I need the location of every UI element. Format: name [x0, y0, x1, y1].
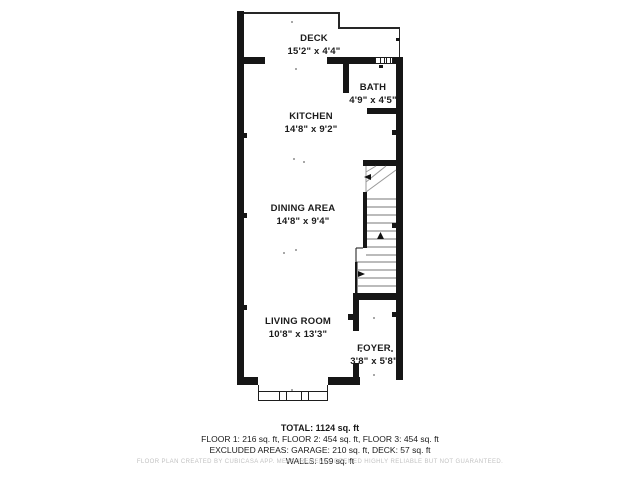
- window-mullion: [380, 58, 385, 63]
- deck-outline-upper-right: [338, 27, 400, 29]
- staircase: [350, 160, 403, 300]
- wall-tick: [392, 312, 396, 317]
- top-wall-left-segment: [237, 57, 265, 64]
- foyer-top-wall: [353, 293, 403, 300]
- room-name: LIVING ROOM: [265, 316, 331, 329]
- foyer-door-stub: [348, 314, 353, 320]
- wall-tick: [392, 130, 396, 135]
- bottom-wall-left-segment: [237, 377, 258, 385]
- left-exterior-wall: [237, 11, 244, 385]
- room-dimensions: 14'8" x 9'4": [271, 216, 336, 229]
- wall-tick: [244, 133, 247, 138]
- plan-speck: [291, 389, 293, 391]
- room-label-foyer: FOYER 3'8" x 5'8": [350, 343, 397, 368]
- plan-speck: [373, 374, 375, 376]
- room-label-kitchen: KITCHEN 14'8" x 9'2": [285, 111, 338, 136]
- foyer-left-wall-upper: [353, 300, 359, 331]
- room-dimensions: 10'8" x 13'3": [265, 329, 331, 342]
- bath-window: [375, 57, 393, 64]
- wall-tick: [392, 223, 396, 228]
- bath-bottom-wall: [367, 108, 403, 114]
- bath-left-wall: [343, 57, 349, 93]
- plan-speck: [293, 158, 295, 160]
- bottom-wall-right-segment: [328, 377, 360, 385]
- room-name: FOYER: [350, 343, 397, 356]
- room-name: BATH: [349, 82, 396, 95]
- floor-areas-text: FLOOR 1: 216 sq. ft, FLOOR 2: 454 sq. ft…: [0, 434, 640, 444]
- stair-winder-line: [366, 170, 396, 192]
- stair-lower-left-wall: [355, 262, 358, 293]
- room-dimensions: 14'8" x 9'2": [285, 124, 338, 137]
- deck-outline-top: [244, 12, 340, 14]
- room-name: DECK: [288, 33, 341, 46]
- room-dimensions: 4'9" x 4'5": [349, 95, 396, 108]
- stair-arrow-right: [358, 271, 365, 277]
- deck-outline-right: [399, 27, 401, 58]
- wall-tick: [244, 305, 247, 310]
- room-dimensions: 15'2" x 4'4": [288, 46, 341, 59]
- plan-speck: [295, 68, 297, 70]
- living-room-bay-window: [258, 391, 328, 401]
- wall-tick: [379, 65, 383, 68]
- total-area-text: TOTAL: 1124 sq. ft: [0, 423, 640, 433]
- room-label-dining-area: DINING AREA 14'8" x 9'4": [271, 203, 336, 228]
- disclaimer-text: FLOOR PLAN CREATED BY CUBICASA APP. MEAS…: [0, 459, 640, 465]
- room-label-living-room: LIVING ROOM 10'8" x 13'3": [265, 316, 331, 341]
- window-mullion: [301, 392, 309, 400]
- excluded-areas-text: EXCLUDED AREAS: GARAGE: 210 sq. ft, DECK…: [0, 445, 640, 455]
- room-label-deck: DECK 15'2" x 4'4": [288, 33, 341, 58]
- plan-speck: [295, 249, 297, 251]
- stair-left-wall: [363, 192, 367, 248]
- top-wall-mid-segment: [327, 57, 375, 64]
- room-label-bath: BATH 4'9" x 4'5": [349, 82, 396, 107]
- room-name: KITCHEN: [285, 111, 338, 124]
- wall-tick: [396, 38, 400, 41]
- plan-speck: [373, 317, 375, 319]
- room-name: DINING AREA: [271, 203, 336, 216]
- stair-winder-line: [366, 166, 376, 172]
- room-dimensions: 3'8" x 5'8": [350, 356, 397, 369]
- plan-speck: [303, 161, 305, 163]
- floor-plan-image: DECK 15'2" x 4'4" BATH 4'9" x 4'5" KITCH…: [0, 0, 640, 480]
- window-mullion: [386, 58, 391, 63]
- wall-tick: [244, 213, 247, 218]
- stair-arrow-left: [364, 174, 371, 180]
- window-mullion: [279, 392, 287, 400]
- stair-arrow-up: [377, 232, 384, 239]
- plan-speck: [291, 21, 293, 23]
- plan-speck: [283, 252, 285, 254]
